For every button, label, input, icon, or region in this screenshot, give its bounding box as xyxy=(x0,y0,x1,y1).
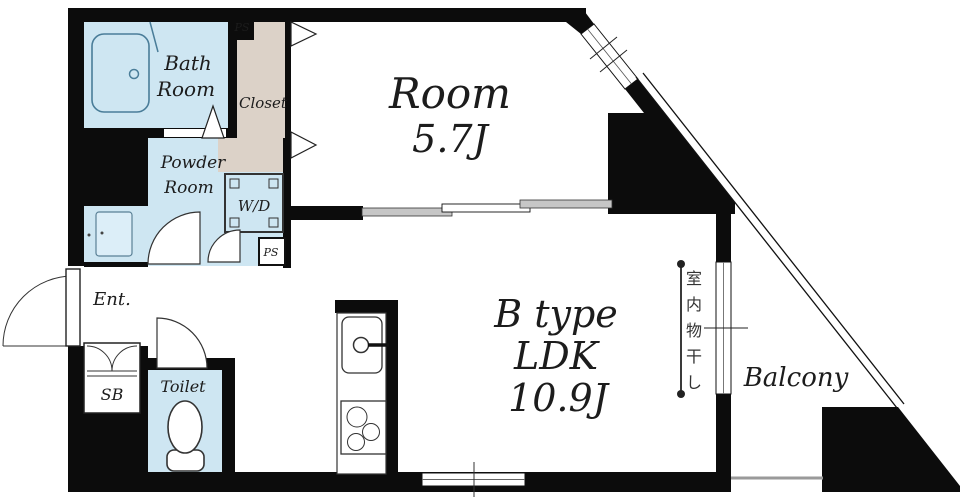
shoe-box-label: SB xyxy=(101,385,124,404)
wall-room-partition xyxy=(283,206,363,220)
wall-top xyxy=(68,8,586,22)
wall-kitchen-right xyxy=(386,300,398,476)
bath-room-label-2: Room xyxy=(156,77,215,101)
floorplan-canvas: Bath Room Powder Room Closet W/D PS PS E… xyxy=(0,0,960,498)
wall-powder-left xyxy=(84,138,148,206)
wall-toilet-right xyxy=(222,358,235,492)
kitchen-counter xyxy=(337,313,389,474)
powder-room-label-1: Powder xyxy=(160,153,226,173)
ldk-label-type: B type xyxy=(493,292,618,336)
wall-left-upper xyxy=(68,8,84,266)
toilet-bowl-icon xyxy=(167,401,204,471)
powder-room-label-2: Room xyxy=(163,178,213,198)
stove-icon xyxy=(341,401,386,454)
ps-mid-label: PS xyxy=(263,246,279,259)
entrance-label: Ent. xyxy=(92,289,131,310)
balcony-label: Balcony xyxy=(743,363,849,393)
ps-top-label: PS xyxy=(234,21,250,34)
washer-dryer-label: W/D xyxy=(238,197,271,215)
bath-room-label-1: Bath xyxy=(163,51,212,75)
wall-bottom xyxy=(68,472,731,492)
ldk-label-size: 10.9J xyxy=(508,376,610,420)
toilet-label: Toilet xyxy=(160,377,206,396)
faucet-icon xyxy=(354,338,369,353)
floorplan-svg: Bath Room Powder Room Closet W/D PS PS E… xyxy=(0,0,960,498)
room-label-name: Room xyxy=(388,69,511,118)
wall-niche-bottom xyxy=(84,262,148,267)
laundry-label: 室内物干し xyxy=(686,269,702,392)
ldk-label-name: LDK xyxy=(513,334,601,378)
entry-door-leaf xyxy=(66,269,80,346)
closet-label: Closet xyxy=(239,94,288,112)
room-label-size: 5.7J xyxy=(412,117,489,161)
wall-ldk-right-upper xyxy=(716,206,731,262)
